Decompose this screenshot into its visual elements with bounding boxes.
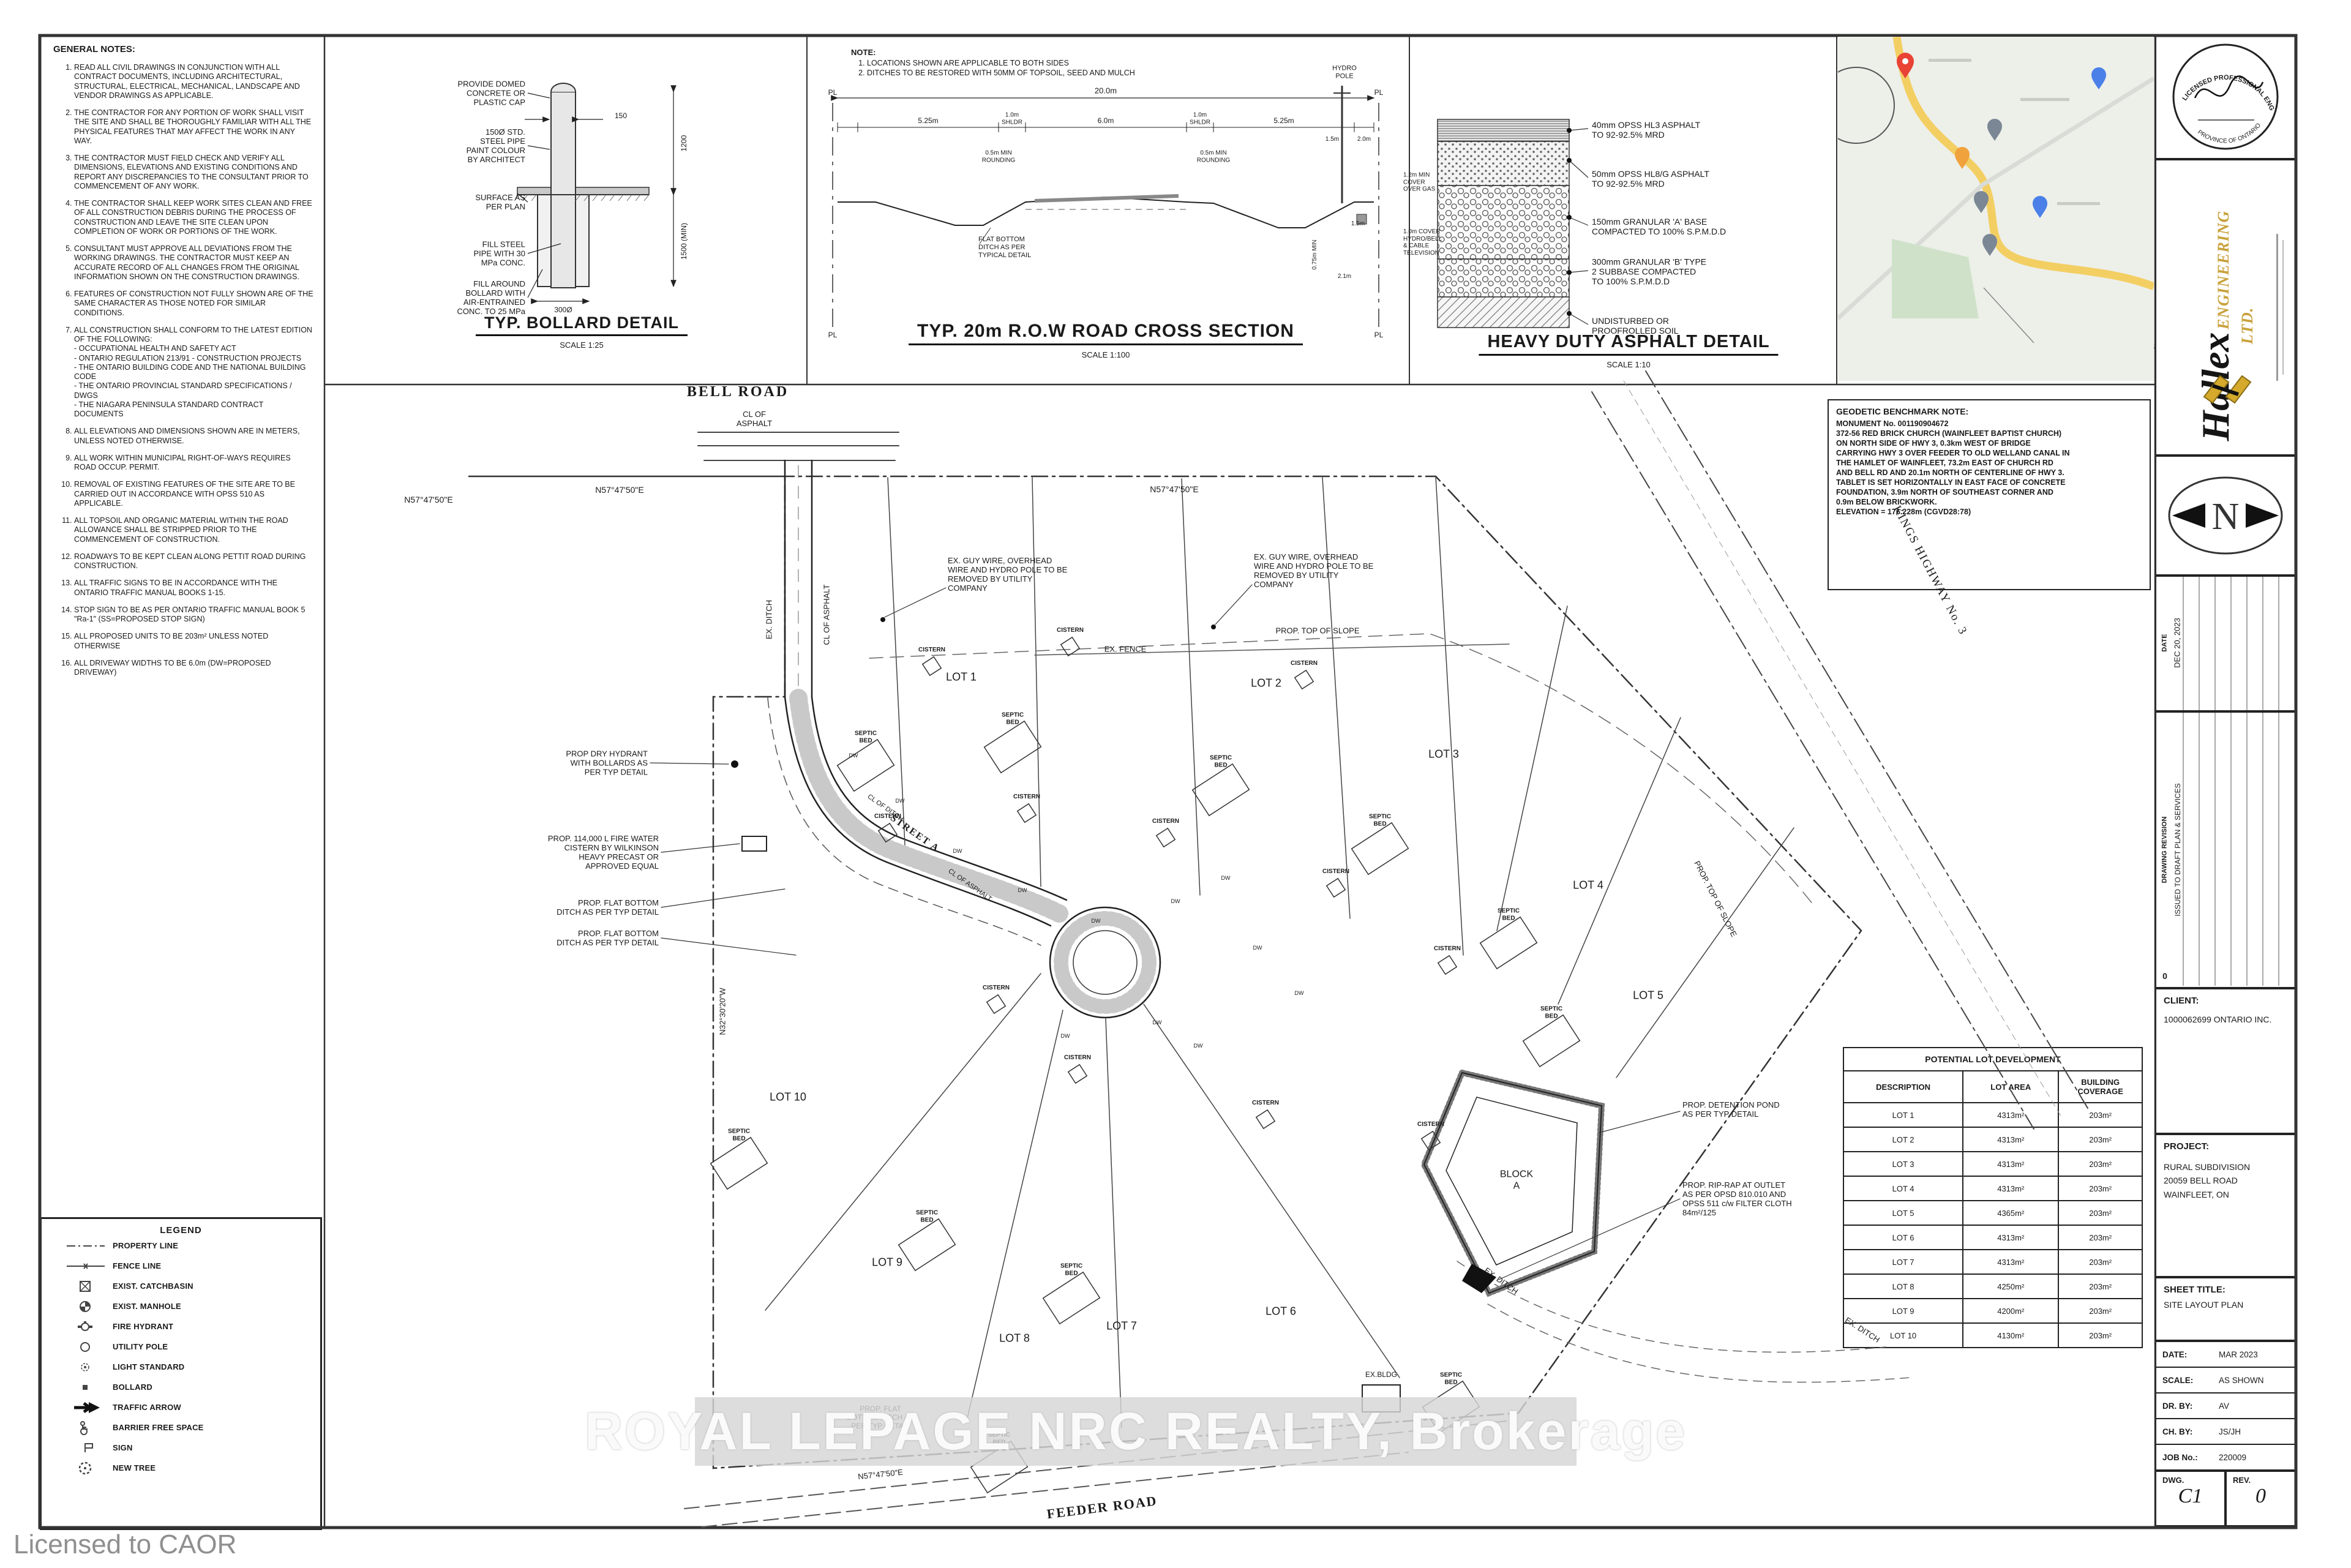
cistern-shape	[1061, 637, 1079, 656]
north-arrow: N	[2169, 478, 2282, 553]
cistern-shape	[1157, 828, 1175, 847]
sheet-linework: LICENSED PROFESSIONAL ENGINEER PROVINCE …	[0, 0, 2351, 1568]
septic-bed-shape	[899, 1219, 956, 1270]
cistern-shape	[987, 995, 1005, 1013]
cistern-shape	[1327, 879, 1345, 897]
north-letter: N	[2212, 496, 2240, 538]
engineering-drawing-page: { "general_notes": { "title": "GENERAL N…	[0, 0, 2351, 1568]
key-plan-map	[1818, 37, 2154, 381]
company-logo-emblem	[2204, 376, 2251, 403]
cistern-shape	[1438, 956, 1457, 974]
septic-bed-shape	[1480, 917, 1537, 969]
cross-section-linework	[833, 86, 1379, 331]
septic-bed-shape	[711, 1138, 768, 1189]
bollard-detail-linework	[514, 83, 673, 301]
septic-bed-shape	[984, 721, 1041, 773]
asphalt-detail-linework	[1438, 119, 1588, 328]
septic-bed-shape	[1043, 1272, 1100, 1324]
septic-cistern-shapes	[711, 637, 1580, 1493]
cistern-shape	[1018, 804, 1036, 822]
watermark: ROYAL LEPAGE NRC REALTY, Brokerage	[695, 1397, 1577, 1466]
revision-grid	[2183, 577, 2279, 986]
cistern-shape	[1295, 670, 1313, 689]
septic-bed-shape	[1523, 1015, 1580, 1067]
septic-bed-shape	[1352, 823, 1409, 874]
cistern-shape	[1068, 1065, 1087, 1083]
cistern-shape	[1256, 1110, 1275, 1128]
watermark-text: ROYAL LEPAGE NRC REALTY, Brokerage	[585, 1401, 1687, 1462]
septic-bed-shape	[1193, 764, 1250, 816]
site-plan-linework	[468, 371, 2088, 1527]
septic-bed-shape	[838, 740, 894, 791]
license-footer: Licensed to CAOR	[13, 1529, 236, 1560]
cistern-shape	[923, 657, 941, 675]
